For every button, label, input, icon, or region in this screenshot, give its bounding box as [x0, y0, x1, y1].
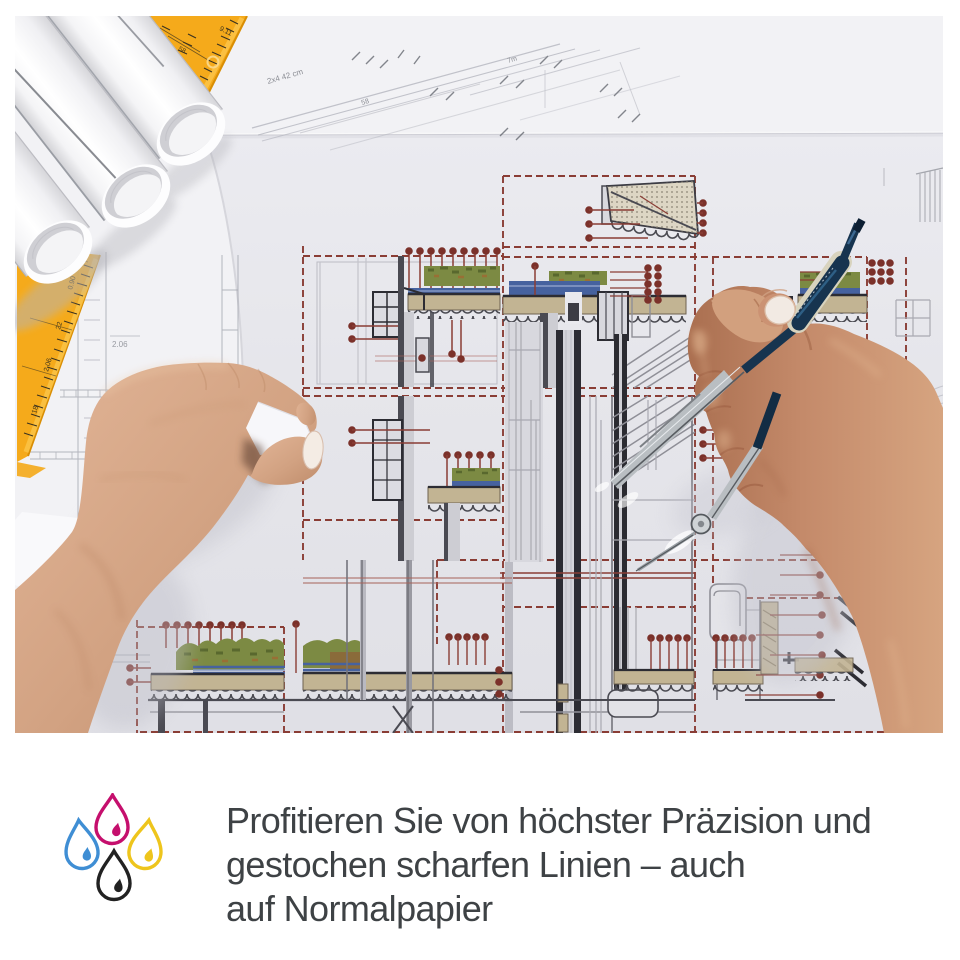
svg-text:2.06: 2.06 [112, 340, 128, 349]
